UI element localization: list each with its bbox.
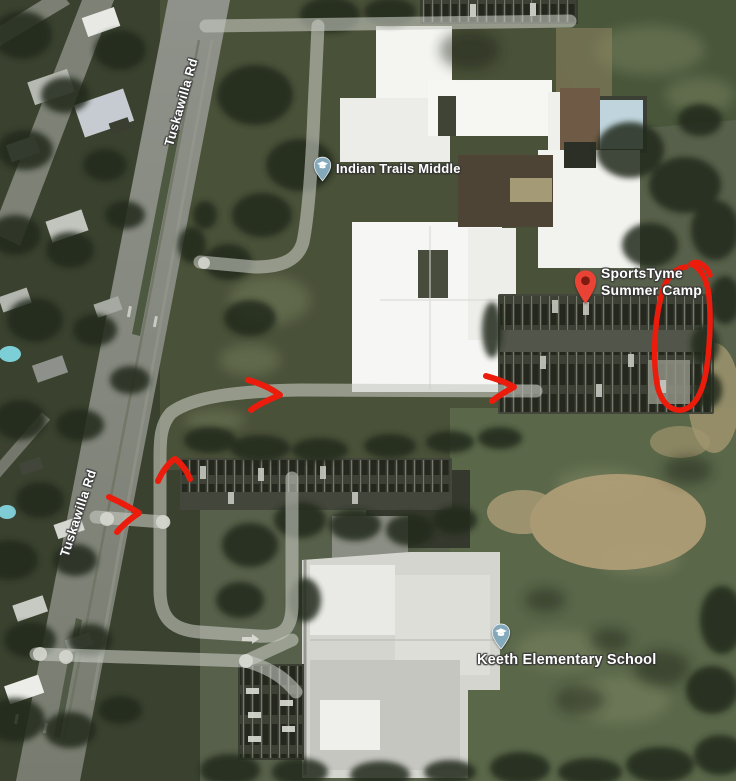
poi-pin-sportstyme[interactable]	[573, 268, 598, 306]
poi-label-sportstyme[interactable]: SportsTyme Summer Camp	[601, 265, 702, 299]
poi-pin-indian-trails[interactable]	[313, 155, 332, 183]
red-map-pin-icon	[573, 268, 598, 306]
map-viewport[interactable]: Tuskawilla Rd Tuskawilla Rd Indian Trail…	[0, 0, 736, 781]
poi-label-line1: SportsTyme	[601, 265, 702, 282]
south-parking-lot	[180, 458, 452, 510]
graduation-cap-pin-icon	[313, 155, 332, 183]
poi-pin-keeth[interactable]	[491, 621, 511, 652]
swimming-pool	[0, 346, 21, 362]
graduation-cap-pin-icon	[491, 621, 511, 652]
poi-label-keeth[interactable]: Keeth Elementary School	[477, 652, 656, 668]
poi-label-indian-trails[interactable]: Indian Trails Middle	[336, 161, 461, 176]
poi-label-line2: Summer Camp	[601, 282, 702, 299]
